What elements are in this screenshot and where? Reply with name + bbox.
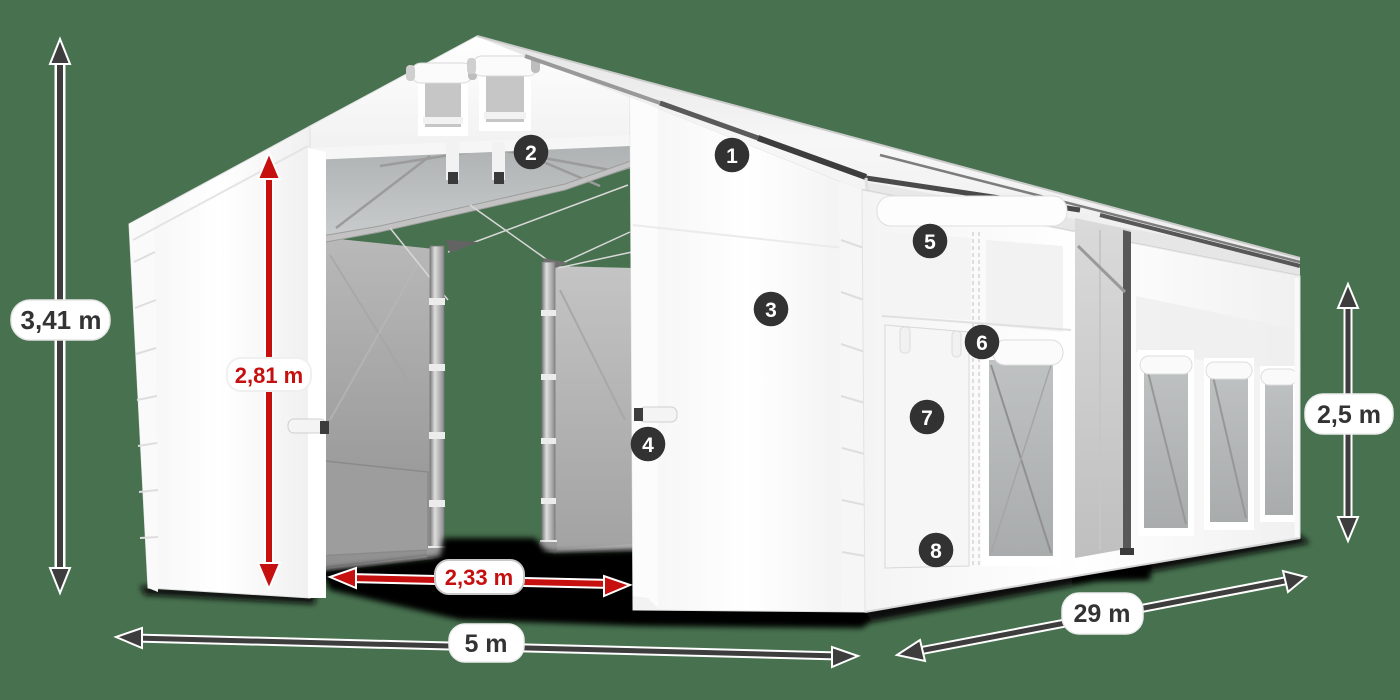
svg-text:8: 8	[930, 540, 942, 563]
svg-text:29 m: 29 m	[1074, 600, 1131, 628]
svg-text:3,41 m: 3,41 m	[21, 305, 102, 335]
svg-text:6: 6	[976, 332, 988, 355]
svg-text:2,33 m: 2,33 m	[445, 565, 514, 590]
svg-text:3: 3	[765, 299, 777, 322]
svg-text:1: 1	[726, 145, 738, 168]
svg-text:5 m: 5 m	[464, 630, 507, 658]
svg-text:4: 4	[642, 434, 654, 457]
svg-text:2: 2	[525, 142, 537, 165]
svg-text:7: 7	[921, 407, 933, 430]
svg-text:5: 5	[924, 231, 936, 254]
svg-text:2,81 m: 2,81 m	[235, 363, 304, 388]
svg-text:2,5 m: 2,5 m	[1317, 401, 1381, 429]
